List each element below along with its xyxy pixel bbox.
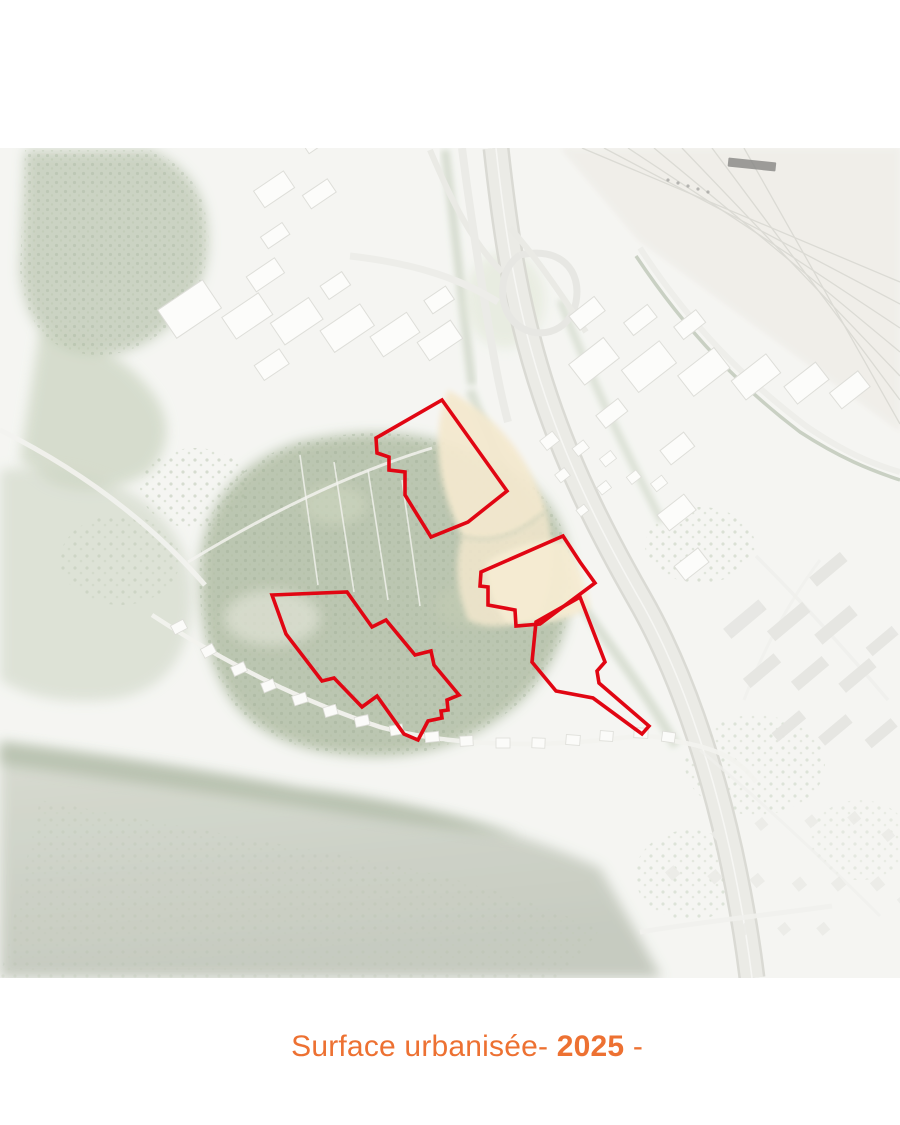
aerial-map (0, 148, 900, 978)
map-caption: Surface urbanisée- 2025 - (0, 996, 900, 1098)
caption-suffix: - (624, 1030, 643, 1063)
caption-prefix: Surface urbanisée- (291, 1030, 557, 1063)
report-page: Surface urbanisée- 2025 - (0, 0, 900, 1125)
caption-year: 2025 (557, 1030, 625, 1063)
aerial-map-canvas (0, 148, 900, 978)
haze-overlay (0, 148, 900, 978)
